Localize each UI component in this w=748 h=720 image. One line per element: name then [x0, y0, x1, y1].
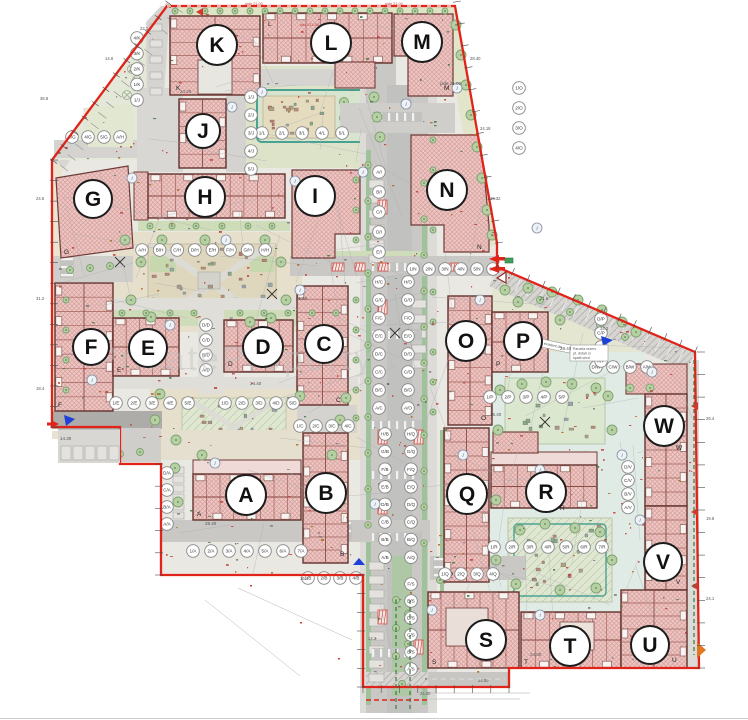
svg-text:B: B: [318, 482, 333, 505]
svg-text:G/B: G/B: [381, 449, 389, 454]
svg-text:24.18: 24.18: [480, 126, 491, 131]
svg-text:3/N: 3/N: [441, 267, 448, 272]
svg-text:G/C: G/C: [375, 298, 384, 303]
svg-text:14.6: 14.6: [105, 56, 114, 61]
svg-text:2/N: 2/N: [425, 267, 432, 272]
svg-text:3/A: 3/A: [226, 549, 234, 554]
svg-text:1/L: 1/L: [259, 131, 266, 136]
svg-text:A/V: A/V: [624, 505, 632, 510]
svg-text:24.1: 24.1: [706, 596, 715, 601]
svg-text:4/E: 4/E: [167, 401, 174, 406]
svg-text:4/K: 4/K: [134, 36, 142, 41]
svg-text:2/K: 2/K: [134, 67, 142, 72]
svg-text:C/I: C/I: [376, 210, 382, 215]
svg-text:B: B: [340, 551, 344, 558]
svg-text:D/Q: D/Q: [407, 502, 416, 507]
svg-text:19.8: 19.8: [706, 516, 715, 521]
svg-text:3/B: 3/B: [337, 576, 344, 581]
svg-text:F/O: F/O: [404, 316, 412, 321]
svg-text:4/N: 4/N: [457, 267, 464, 272]
svg-text:C/H: C/H: [173, 248, 181, 253]
svg-text:22.1: 22.1: [140, 26, 149, 31]
svg-text:Q: Q: [459, 483, 475, 506]
svg-text:pt. dotari si: pt. dotari si: [573, 352, 591, 356]
svg-text:2/A: 2/A: [208, 549, 216, 554]
svg-text:1/N: 1/N: [409, 267, 416, 272]
svg-text:1/C: 1/C: [296, 424, 304, 429]
svg-text:E/Q: E/Q: [407, 484, 415, 489]
svg-text:B/B: B/B: [381, 537, 388, 542]
svg-text:S: S: [432, 659, 437, 666]
svg-text:C/W: C/W: [609, 365, 619, 370]
svg-text:2/E: 2/E: [131, 401, 138, 406]
svg-text:pide 21.00: pide 21.00: [440, 81, 462, 86]
svg-text:A/O: A/O: [404, 406, 412, 411]
svg-text:C: C: [336, 397, 341, 404]
svg-text:7/A: 7/A: [298, 549, 306, 554]
svg-text:4/P: 4/P: [541, 395, 548, 400]
svg-text:A/A: A/A: [163, 522, 171, 527]
svg-text:36.8: 36.8: [40, 96, 49, 101]
svg-text:5/R: 5/R: [562, 545, 570, 550]
svg-text:R: R: [538, 481, 553, 504]
svg-text:ada 211.58: ada 211.58: [300, 23, 319, 27]
svg-text:V: V: [676, 579, 681, 586]
svg-text:O: O: [458, 330, 474, 353]
svg-text:2/J: 2/J: [248, 113, 254, 118]
svg-text:M: M: [413, 31, 431, 54]
svg-text:4/O: 4/O: [515, 146, 523, 151]
svg-text:C/V: C/V: [624, 478, 633, 483]
svg-text:P: P: [516, 330, 530, 353]
svg-text:2/Q: 2/Q: [457, 572, 465, 577]
svg-text:B/H: B/H: [156, 248, 164, 253]
svg-text:U: U: [642, 634, 657, 657]
svg-text:3/L: 3/L: [299, 131, 306, 136]
svg-text:4/R: 4/R: [544, 545, 552, 550]
svg-text:21.6: 21.6: [540, 296, 549, 301]
svg-text:C/P: C/P: [597, 331, 605, 336]
svg-text:H/B: H/B: [381, 432, 389, 437]
svg-text:G: G: [64, 249, 69, 256]
svg-text:D/P: D/P: [597, 317, 605, 322]
svg-text:24.40: 24.40: [250, 381, 262, 386]
svg-text:F/Q: F/Q: [407, 467, 415, 472]
svg-text:E/C: E/C: [375, 334, 383, 339]
svg-text:16.4: 16.4: [300, 576, 309, 581]
svg-text:H/C: H/C: [375, 280, 384, 285]
svg-text:D/O: D/O: [404, 352, 413, 357]
svg-text:B/C: B/C: [375, 388, 383, 393]
svg-text:E/B: E/B: [381, 484, 388, 489]
svg-text:spatii verzi: spatii verzi: [573, 356, 590, 360]
svg-text:C/Q: C/Q: [407, 520, 416, 525]
svg-text:3/R: 3/R: [526, 545, 534, 550]
svg-text:G/O: G/O: [404, 298, 413, 303]
svg-text:S: S: [479, 629, 493, 652]
svg-text:L: L: [268, 21, 272, 28]
svg-text:B/W: B/W: [626, 365, 635, 370]
svg-text:C: C: [316, 333, 331, 356]
svg-text:1/D: 1/D: [221, 401, 229, 406]
svg-text:4/C: 4/C: [344, 424, 352, 429]
svg-text:2/L: 2/L: [279, 131, 286, 136]
svg-text:Parcela rezerv.: Parcela rezerv.: [573, 347, 597, 351]
svg-text:K: K: [209, 34, 224, 57]
svg-text:C/S: C/S: [407, 633, 415, 638]
svg-text:26.4: 26.4: [706, 416, 715, 421]
svg-text:3/E: 3/E: [149, 401, 156, 406]
svg-text:H/H: H/H: [261, 248, 269, 253]
svg-text:3/C: 3/C: [328, 424, 336, 429]
svg-text:A/B: A/B: [381, 555, 388, 560]
svg-text:14.30: 14.30: [60, 436, 72, 441]
svg-text:B/I: B/I: [376, 190, 382, 195]
svg-text:E/O: E/O: [404, 334, 412, 339]
svg-text:7/R: 7/R: [598, 545, 606, 550]
svg-text:G/H: G/H: [244, 248, 252, 253]
svg-text:V: V: [656, 551, 670, 574]
svg-text:5/A: 5/A: [262, 549, 270, 554]
svg-text:F: F: [58, 402, 62, 409]
svg-text:3/Q: 3/Q: [473, 572, 481, 577]
svg-text:2/P: 2/P: [505, 395, 512, 400]
svg-text:5/N: 5/N: [473, 267, 480, 272]
svg-text:N: N: [477, 244, 482, 251]
svg-text:L: L: [325, 32, 338, 55]
svg-text:4/D: 4/D: [272, 401, 280, 406]
svg-text:18.4: 18.4: [36, 386, 45, 391]
svg-text:A/C: A/C: [375, 406, 383, 411]
svg-text:D/I: D/I: [376, 230, 382, 235]
svg-text:C/O: C/O: [404, 370, 413, 375]
svg-text:34.2: 34.2: [600, 326, 609, 331]
svg-text:3/J: 3/J: [248, 131, 254, 136]
svg-text:5/G: 5/G: [100, 135, 108, 140]
svg-text:C/A: C/A: [163, 488, 172, 493]
svg-text:pide 21.00: pide 21.00: [385, 2, 403, 6]
svg-text:24.00: 24.00: [420, 691, 431, 696]
svg-text:28.40: 28.40: [470, 56, 481, 61]
svg-text:G: G: [85, 188, 101, 211]
svg-text:W: W: [654, 415, 674, 438]
svg-text:H: H: [197, 186, 212, 209]
svg-text:D: D: [255, 336, 270, 359]
svg-text:2/O: 2/O: [515, 106, 523, 111]
svg-text:N: N: [439, 179, 454, 202]
svg-text:B/S: B/S: [407, 650, 414, 655]
svg-text:H/Q: H/Q: [407, 432, 416, 437]
svg-text:31.50: 31.50: [296, 296, 308, 301]
svg-text:D/B: D/B: [381, 502, 389, 507]
svg-text:4/G: 4/G: [84, 135, 92, 140]
svg-text:1/J: 1/J: [134, 98, 140, 103]
svg-text:E/H: E/H: [209, 248, 217, 253]
svg-text:31.2: 31.2: [36, 296, 45, 301]
svg-text:D/S: D/S: [407, 616, 415, 621]
svg-text:28.40: 28.40: [560, 346, 572, 351]
svg-text:1/A: 1/A: [190, 549, 198, 554]
svg-text:M: M: [444, 85, 449, 92]
svg-text:6/A: 6/A: [280, 549, 288, 554]
svg-text:2/B: 2/B: [321, 576, 328, 581]
svg-text:A/I: A/I: [376, 170, 382, 175]
svg-text:D/C: D/C: [375, 352, 384, 357]
svg-text:B/V: B/V: [624, 492, 632, 497]
svg-text:2/D: 2/D: [238, 401, 246, 406]
svg-text:5/L: 5/L: [339, 131, 346, 136]
svg-text:H/O: H/O: [404, 280, 413, 285]
svg-text:24.5: 24.5: [36, 196, 45, 201]
svg-text:4/B: 4/B: [353, 576, 360, 581]
svg-text:A: A: [238, 484, 253, 507]
svg-text:2/R: 2/R: [508, 545, 516, 550]
svg-text:U: U: [672, 657, 677, 664]
svg-text:T: T: [524, 659, 528, 666]
svg-text:1/J: 1/J: [248, 95, 254, 100]
svg-text:3/K: 3/K: [134, 51, 142, 56]
svg-text:1/Q: 1/Q: [441, 572, 449, 577]
svg-text:A/H: A/H: [138, 248, 146, 253]
svg-text:1/O: 1/O: [515, 86, 523, 91]
svg-text:E/S: E/S: [407, 599, 414, 604]
svg-text:3/D: 3/D: [255, 401, 263, 406]
svg-text:24.00: 24.00: [530, 652, 542, 657]
svg-text:pide 21.00: pide 21.00: [245, 2, 263, 6]
svg-text:A/Q: A/Q: [407, 555, 415, 560]
svg-text:1/R: 1/R: [490, 545, 498, 550]
svg-text:C/C: C/C: [375, 370, 384, 375]
svg-text:4/L: 4/L: [319, 131, 326, 136]
svg-text:D/V: D/V: [624, 465, 633, 470]
svg-text:E: E: [141, 337, 155, 360]
svg-text:E/I: E/I: [376, 250, 382, 255]
svg-text:D/A: D/A: [163, 471, 172, 476]
svg-text:5/J: 5/J: [248, 167, 254, 172]
svg-text:D/H: D/H: [191, 248, 199, 253]
svg-text:3/O: 3/O: [515, 126, 523, 131]
svg-text:16.32: 16.32: [490, 196, 501, 201]
svg-text:4/A: 4/A: [244, 549, 252, 554]
svg-text:4/Q: 4/Q: [489, 572, 497, 577]
svg-text:O: O: [481, 415, 486, 422]
svg-text:5/D: 5/D: [289, 401, 297, 406]
svg-text:B/Q: B/Q: [407, 537, 415, 542]
svg-text:4/J: 4/J: [248, 149, 254, 154]
svg-text:F/H: F/H: [226, 248, 233, 253]
svg-text:A/H: A/H: [116, 135, 124, 140]
svg-text:12.2: 12.2: [368, 636, 377, 641]
svg-text:F/B: F/B: [381, 467, 388, 472]
svg-text:5/E: 5/E: [185, 401, 192, 406]
svg-text:3/P: 3/P: [523, 395, 530, 400]
svg-text:F/S: F/S: [407, 582, 414, 587]
svg-text:I: I: [312, 185, 318, 208]
svg-text:6/R: 6/R: [580, 545, 588, 550]
svg-text:B/A: B/A: [163, 505, 171, 510]
svg-text:28.40: 28.40: [205, 521, 217, 526]
svg-text:24.20: 24.20: [180, 89, 192, 94]
svg-text:B/O: B/O: [404, 388, 412, 393]
svg-text:T: T: [564, 635, 577, 658]
svg-text:5/P: 5/P: [559, 395, 566, 400]
svg-text:J: J: [197, 120, 209, 143]
svg-text:A/S: A/S: [407, 667, 414, 672]
svg-text:1/E: 1/E: [113, 401, 120, 406]
svg-text:1/P: 1/P: [487, 395, 494, 400]
svg-text:P: P: [496, 361, 500, 368]
svg-text:F/C: F/C: [375, 316, 383, 321]
svg-text:F: F: [85, 336, 98, 359]
svg-text:2/C: 2/C: [312, 424, 320, 429]
svg-text:D/D: D/D: [202, 323, 211, 328]
svg-text:16.40: 16.40: [490, 412, 502, 417]
svg-text:1/K: 1/K: [134, 82, 142, 87]
svg-text:G/Q: G/Q: [407, 449, 416, 454]
svg-text:C/B: C/B: [381, 520, 389, 525]
